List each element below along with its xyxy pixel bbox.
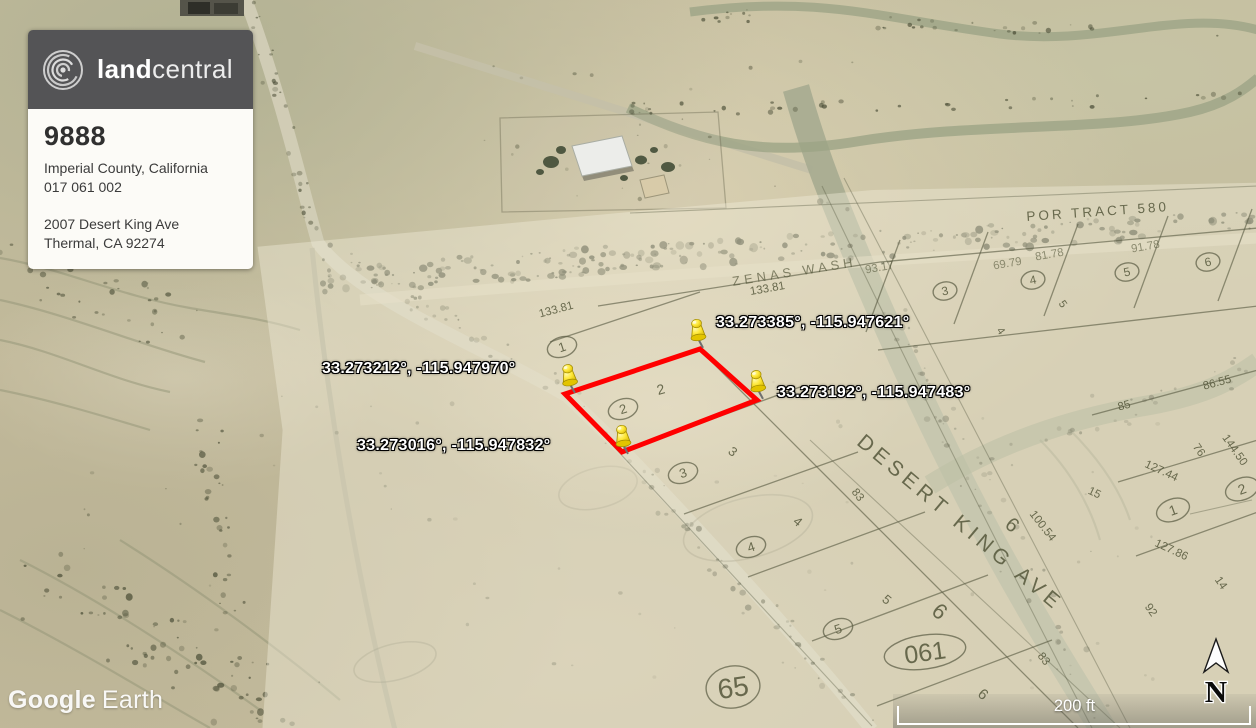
property-info-card: landcentral 9888 Imperial County, Califo… bbox=[28, 30, 253, 269]
listing-address-city: Thermal, CA 92274 bbox=[44, 234, 237, 253]
landcentral-wordmark: landcentral bbox=[97, 54, 233, 85]
google-earth-watermark: GoogleEarth bbox=[8, 686, 163, 715]
pin-coordinate-label-north: 33.273385°, -115.947621° bbox=[716, 314, 910, 332]
listing-address-street: 2007 Desert King Ave bbox=[44, 215, 237, 234]
listing-county: Imperial County, California bbox=[44, 159, 237, 178]
listing-apn: 017 061 002 bbox=[44, 178, 237, 197]
listing-id: 9888 bbox=[44, 121, 237, 152]
pin-coordinate-label-south: 33.273016°, -115.947832° bbox=[357, 437, 551, 455]
card-body: 9888 Imperial County, California 017 061… bbox=[28, 109, 253, 269]
north-compass: N bbox=[1194, 636, 1238, 710]
map-pin-south[interactable] bbox=[614, 424, 633, 455]
google-earth-viewport[interactable]: POR TRACT 580 ZENAS WASH DESERT KING AVE… bbox=[0, 0, 1256, 728]
pin-coordinate-label-west: 33.273212°, -115.947970° bbox=[322, 360, 516, 378]
landcentral-logo-icon bbox=[40, 47, 86, 93]
map-pin-west[interactable] bbox=[560, 363, 580, 394]
map-pin-north[interactable] bbox=[689, 318, 708, 349]
north-arrow-icon bbox=[1204, 639, 1228, 672]
map-pin-east[interactable] bbox=[748, 369, 767, 400]
north-label: N bbox=[1205, 674, 1227, 709]
pin-coordinate-label-east: 33.273192°, -115.947483° bbox=[777, 384, 971, 402]
card-header: landcentral bbox=[28, 30, 253, 109]
